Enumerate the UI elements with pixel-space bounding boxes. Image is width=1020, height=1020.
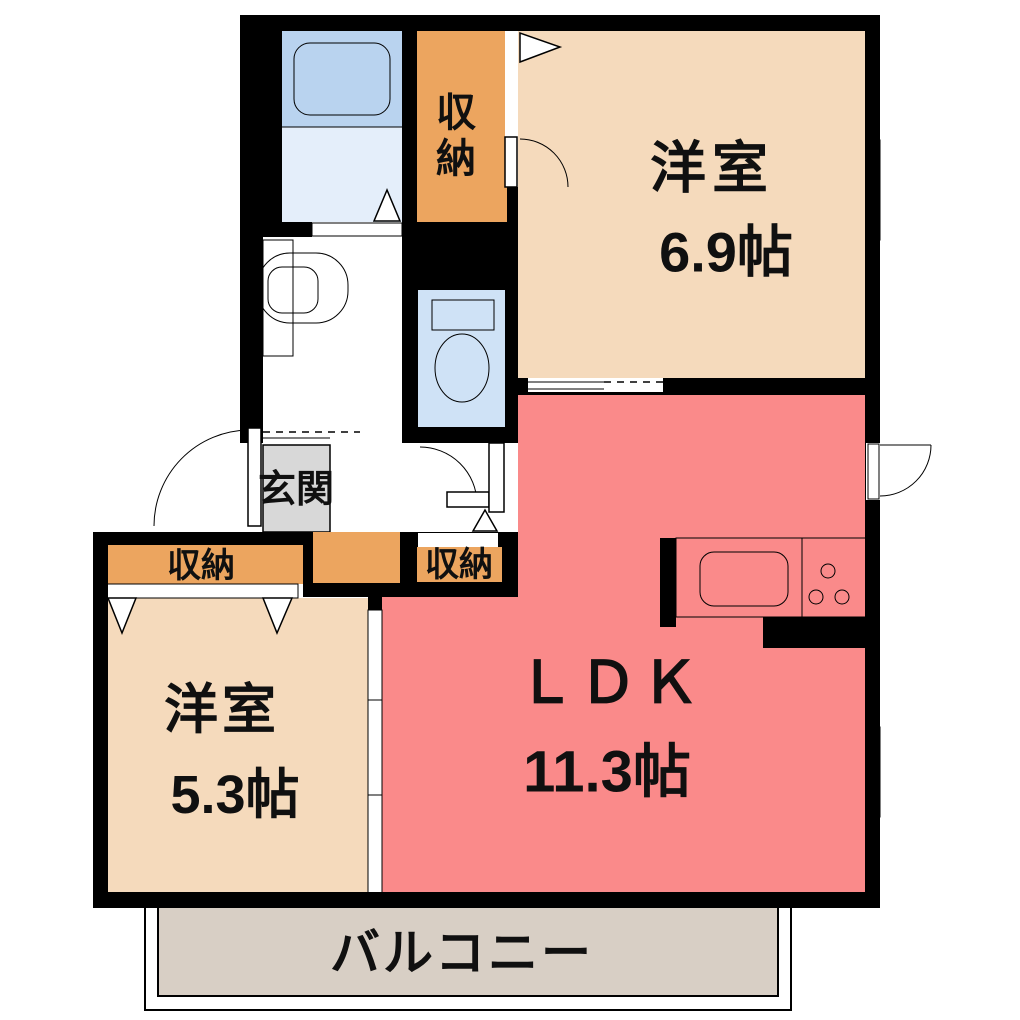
- east-room-label: 洋室: [650, 137, 774, 200]
- closet-north-label-top: 収: [436, 91, 476, 135]
- wall-segment: [263, 31, 282, 222]
- floorplan-canvas: 洋室 6.9帖 ＬＤＫ 11.3帖 洋室 5.3帖 収 納 収納 収納 玄関 バ…: [0, 0, 1020, 1020]
- wall-segment: [93, 532, 108, 908]
- closet-west-label: 収納: [167, 547, 235, 585]
- kitchen-wall-stub: [660, 538, 676, 627]
- wall-segment: [402, 222, 518, 290]
- wall-segment: [255, 222, 312, 237]
- closet-north-label-bottom: 納: [436, 137, 476, 181]
- bathroom-tub-zone: [282, 31, 402, 127]
- wall-segment: [368, 597, 382, 610]
- washroom-sliding-door: [263, 428, 360, 441]
- toilet-room-floor: [418, 290, 505, 427]
- floorplan-svg: 洋室 6.9帖 ＬＤＫ 11.3帖 洋室 5.3帖 収 納 収納 収納 玄関 バ…: [0, 0, 1020, 1020]
- kitchen-half-wall: [763, 617, 871, 648]
- western-room-west-floor: [108, 598, 368, 892]
- east-room-size: 6.9帖: [659, 221, 793, 284]
- balcony-label: バルコニー: [330, 925, 594, 981]
- entrance-label: 玄関: [258, 469, 334, 511]
- toilet-door-leaf: [447, 492, 489, 507]
- western-room-east-floor: [518, 31, 865, 378]
- ldk-door-leaf: [489, 443, 504, 512]
- bathroom: [282, 31, 402, 236]
- wall-segment: [505, 187, 518, 443]
- washroom-floor: [263, 237, 402, 427]
- washroom: [258, 237, 402, 427]
- east-room-door-leaf: [505, 137, 517, 187]
- ldk-label: ＬＤＫ: [517, 651, 703, 716]
- closet-hall-door: [418, 533, 498, 547]
- closet-mid: [313, 532, 400, 583]
- west-room-label: 洋室: [164, 680, 280, 740]
- ldk-floor-west: [382, 597, 518, 892]
- toilet-room: [418, 290, 505, 427]
- east-ldk-sliding-door: [528, 378, 663, 392]
- ldk-door-opening: [505, 443, 518, 532]
- closet-hall-label: 収納: [425, 546, 493, 584]
- wall-segment: [93, 532, 310, 545]
- wall-segment: [402, 427, 518, 443]
- ldk-size: 11.3帖: [523, 740, 691, 805]
- west-room-size: 5.3帖: [170, 765, 299, 825]
